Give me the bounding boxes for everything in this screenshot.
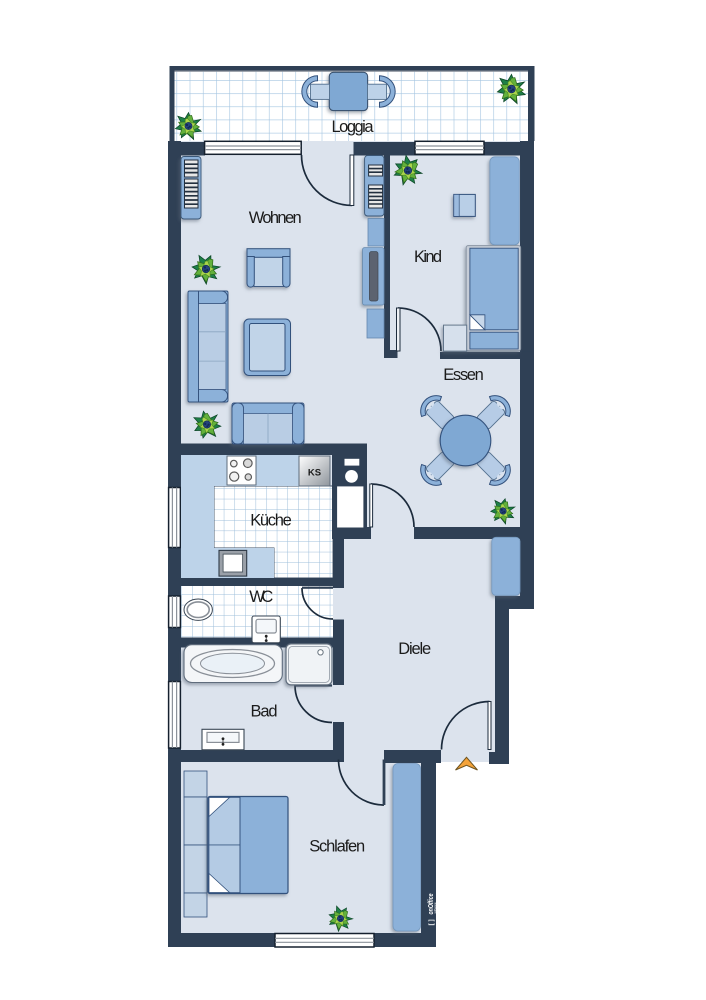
svg-text:Diele: Diele: [398, 640, 431, 658]
svg-text:Bad: Bad: [251, 703, 278, 721]
svg-text:Essen: Essen: [443, 366, 484, 384]
svg-text:KS: KS: [308, 468, 321, 479]
svg-text:Küche: Küche: [250, 512, 292, 530]
svg-text:[ ]: [ ]: [428, 919, 435, 925]
svg-text:Wohnen: Wohnen: [249, 209, 302, 227]
svg-text:Loggia: Loggia: [332, 118, 375, 136]
svg-text:software: software: [433, 902, 437, 913]
svg-text:Schlafen: Schlafen: [309, 838, 365, 856]
svg-text:WC: WC: [249, 588, 273, 606]
svg-text:Kind: Kind: [414, 248, 442, 266]
